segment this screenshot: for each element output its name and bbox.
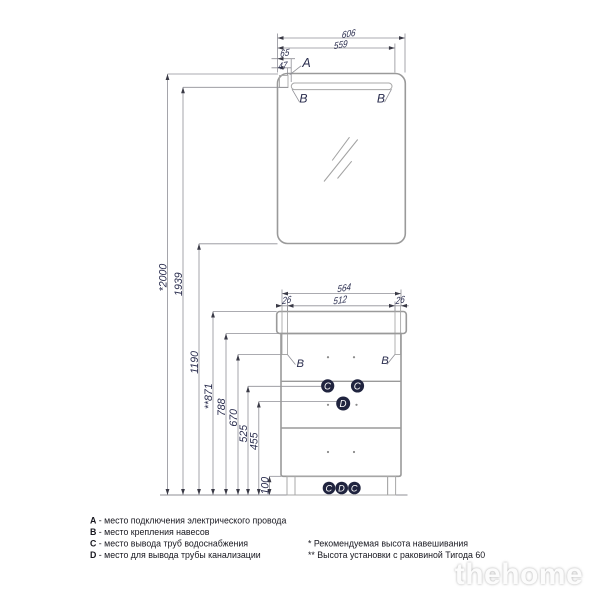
svg-text:670: 670 [228,409,240,427]
svg-text:B: B [381,355,389,367]
svg-text:**871: **871 [203,383,215,409]
svg-text:*2000: *2000 [157,264,169,292]
svg-text:788: 788 [216,398,228,416]
svg-text:455: 455 [249,432,261,450]
svg-text:D - место для вывода трубы кан: D - место для вывода трубы канализации [90,550,261,560]
svg-text:C: C [324,381,332,392]
svg-text:* Рекомендуемая высота навешив: * Рекомендуемая высота навешивания [308,538,468,548]
svg-text:1190: 1190 [189,351,201,374]
svg-text:100: 100 [259,477,271,495]
svg-text:C: C [351,483,358,493]
svg-text:C: C [354,381,362,392]
svg-text:A: A [301,56,310,70]
svg-text:B: B [377,92,385,106]
svg-text:thehome: thehome [455,558,584,591]
svg-text:B: B [299,92,307,106]
svg-text:C: C [325,483,332,493]
svg-text:A - место подключения электрич: A - место подключения электрического про… [90,516,286,526]
svg-text:65: 65 [280,47,291,60]
svg-text:1939: 1939 [173,272,185,296]
svg-text:B: B [297,358,305,370]
svg-text:47: 47 [278,59,289,72]
svg-text:26: 26 [281,294,293,307]
svg-text:** Высота установки с раковино: ** Высота установки с раковиной Тигода 6… [308,550,485,560]
svg-text:D: D [340,399,347,410]
svg-text:26: 26 [394,294,406,307]
svg-text:B - место крепления навесов: B - место крепления навесов [90,527,210,537]
svg-text:C - место вывода труб водоснаб: C - место вывода труб водоснабжения [90,538,248,548]
svg-text:D: D [338,483,345,493]
